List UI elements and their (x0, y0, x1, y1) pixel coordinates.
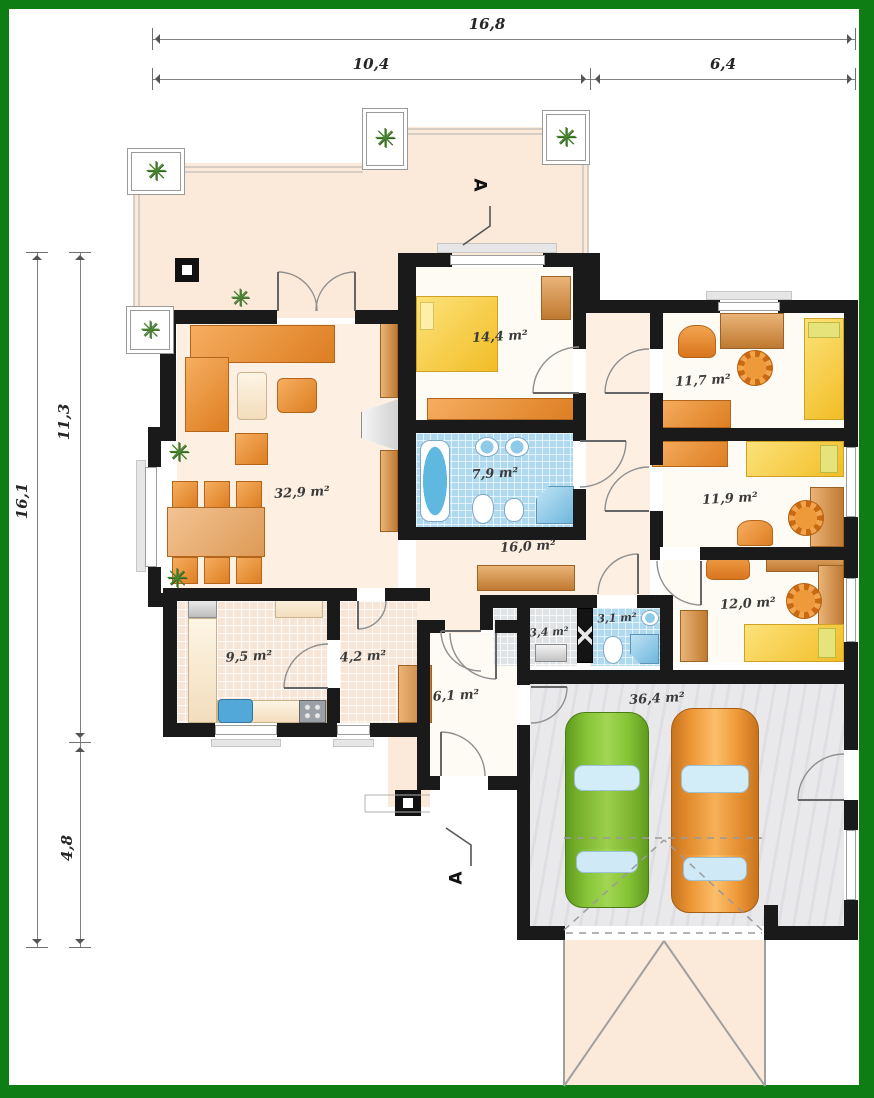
window-sill (437, 243, 557, 253)
car-rear-window (683, 857, 747, 881)
dining-table (167, 507, 265, 557)
dim-line (37, 252, 38, 948)
terrace-column-core (182, 265, 192, 275)
room-label-hall: 16,0 m² (500, 538, 556, 556)
section-marker-bottom: A (447, 871, 467, 884)
wardrobe (652, 441, 728, 467)
wall (650, 428, 844, 441)
wall (416, 420, 573, 433)
wall (573, 267, 586, 349)
wall (148, 567, 161, 593)
plant-icon: ✳ (145, 159, 167, 185)
small-table (737, 520, 773, 546)
window-sill (333, 739, 374, 747)
wardrobe (427, 398, 575, 420)
dim-arrow (32, 939, 42, 949)
car-windshield (574, 765, 640, 791)
window (846, 447, 856, 517)
wall (637, 595, 673, 608)
wall (844, 517, 858, 578)
wall (517, 608, 530, 685)
wall (650, 313, 663, 349)
wall (700, 547, 844, 560)
desk (720, 313, 784, 349)
room-label-utility: 3,4 m² (529, 624, 569, 639)
wall (163, 593, 177, 737)
porch-column-core (403, 798, 413, 808)
washing-machine (535, 644, 567, 662)
window (337, 725, 370, 735)
desk-chair (786, 583, 822, 619)
wall (385, 588, 430, 601)
window-sill (706, 291, 792, 300)
bidet (504, 498, 524, 522)
room-label-wc: 3,1 m² (597, 610, 637, 625)
planter-box: ✳ (542, 110, 590, 165)
room-label-bathroom: 7,9 m² (471, 465, 518, 482)
wall (517, 670, 844, 684)
window (145, 467, 157, 567)
driveway-apron (564, 940, 765, 1085)
wall (480, 608, 493, 630)
dresser (541, 276, 571, 320)
wall (148, 441, 161, 467)
window (846, 830, 856, 900)
desk-chair (788, 500, 824, 536)
room-label-vestibule: 6,1 m² (432, 687, 479, 704)
wall (650, 511, 663, 547)
wall (586, 300, 720, 313)
dim-arrow (847, 74, 857, 84)
dim-arrow (150, 34, 160, 44)
wall (355, 310, 398, 324)
car-roof (576, 791, 638, 849)
wall (660, 608, 673, 670)
sofa-vertical (185, 357, 229, 432)
wall (844, 900, 858, 940)
room-label-garage: 36,4 m² (629, 690, 685, 708)
room-label-kitchen: 9,5 m² (225, 648, 272, 665)
wall (573, 393, 586, 441)
hall-sideboard (477, 565, 575, 591)
room-label-living: 32,9 m² (274, 484, 330, 502)
wall (844, 300, 858, 447)
sideboard (380, 320, 398, 398)
desk-chair (737, 350, 773, 386)
car-windshield (681, 765, 749, 793)
window-sill (211, 739, 281, 747)
wall (327, 601, 340, 640)
dim-label-lower-height: 4,8 (58, 835, 76, 861)
room-label-room-b: 11,9 m² (702, 490, 758, 508)
wall (277, 723, 337, 737)
wall (480, 595, 597, 608)
wardrobe (680, 610, 708, 662)
dining-chair (204, 557, 230, 584)
sink (505, 437, 529, 457)
wall (327, 688, 340, 723)
car-rear-window (576, 851, 638, 873)
floor-plan-canvas: ✳ ✳ ✳ ✳ ✳ ✳ ✳ 32,9 m² 14,4 m² 7,9 m² 16,… (0, 0, 874, 1098)
wall (844, 642, 858, 684)
wall (163, 723, 215, 737)
wc-sink (641, 610, 659, 626)
kitchen-counter-left (188, 618, 217, 723)
side-table (235, 433, 268, 465)
toilet (472, 494, 494, 524)
bathtub (420, 440, 450, 522)
sideboard (380, 450, 398, 532)
wall (398, 527, 586, 540)
wall (163, 588, 357, 601)
wc-toilet (603, 636, 623, 664)
window (718, 302, 780, 311)
planter-box: ✳ (126, 306, 174, 354)
armchair (277, 378, 317, 413)
wall (163, 310, 277, 324)
dim-label-left-width: 10,4 (353, 55, 390, 73)
dim-arrow (150, 74, 160, 84)
dim-arrow (590, 74, 600, 84)
dim-label-upper-height: 11,3 (55, 404, 73, 441)
dim-arrow (75, 742, 85, 752)
car-orange (671, 708, 759, 913)
bed-pillow (420, 302, 434, 330)
kitchen-sink (218, 699, 253, 723)
window (215, 725, 277, 735)
plant-icon: ✳ (166, 566, 188, 592)
planter-box: ✳ (127, 148, 185, 195)
wall (517, 776, 530, 926)
dim-label-right-width: 6,4 (710, 55, 736, 73)
wall (844, 684, 858, 750)
chimney-flue (577, 608, 593, 663)
planter-box: ✳ (362, 108, 408, 170)
armchair (678, 325, 716, 358)
dining-chair (172, 481, 198, 508)
cooker (299, 700, 326, 723)
plant-icon: ✳ (374, 126, 396, 152)
wardrobe (657, 400, 731, 428)
desk-return (818, 565, 844, 629)
fridge (188, 598, 217, 618)
dim-label-total-height: 16,1 (13, 483, 31, 520)
room-label-room-c: 12,0 m² (720, 595, 776, 613)
wall (844, 800, 858, 830)
window (450, 255, 545, 265)
bed-pillow (820, 445, 838, 473)
dim-arrow (847, 34, 857, 44)
dim-line (152, 79, 856, 80)
dining-chair (236, 557, 262, 584)
room-label-room-a: 11,7 m² (675, 372, 731, 390)
dim-line (80, 252, 81, 948)
corridor-north-floor (586, 313, 650, 540)
wall (778, 300, 844, 313)
wall (417, 776, 440, 790)
dim-label-total-width: 16,8 (469, 15, 506, 33)
dining-chair (236, 481, 262, 508)
wall (398, 253, 452, 267)
dim-line (152, 39, 856, 40)
car-roof (683, 793, 747, 855)
window (846, 578, 856, 642)
room-label-bedroom: 14,4 m² (472, 328, 528, 346)
plant-icon: ✳ (555, 125, 577, 151)
plant-icon: ✳ (168, 440, 190, 466)
bed-pillow (818, 628, 836, 658)
dim-arrow (32, 250, 42, 260)
wall (650, 547, 660, 560)
wall (517, 926, 565, 940)
section-marker-top: A (470, 178, 490, 191)
coffee-table (237, 372, 267, 420)
room-label-corridor: 4,2 m² (339, 648, 386, 665)
wall (417, 620, 445, 633)
bed-pillow (808, 322, 840, 338)
dim-arrow (75, 250, 85, 260)
plant-icon: ✳ (230, 286, 250, 310)
dining-chair (204, 481, 230, 508)
plant-icon: ✳ (140, 318, 160, 342)
wall (417, 633, 430, 776)
sink (475, 437, 499, 457)
wall (398, 267, 416, 540)
car-green (565, 712, 649, 908)
wall (517, 725, 530, 776)
dim-arrow (75, 939, 85, 949)
